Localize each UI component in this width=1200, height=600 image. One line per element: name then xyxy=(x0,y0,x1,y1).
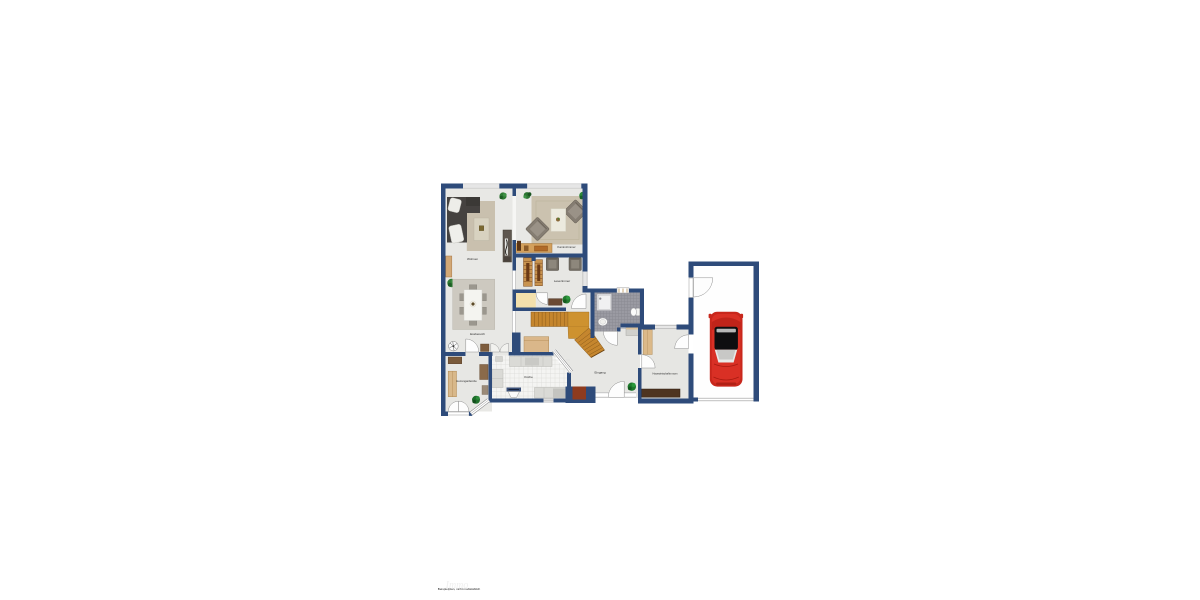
svg-text:Lesezimmer: Lesezimmer xyxy=(554,279,570,283)
svg-text:Essbereich: Essbereich xyxy=(470,332,485,336)
svg-text:Hauswirtschafts raum: Hauswirtschafts raum xyxy=(653,372,678,376)
svg-text:Wohnen: Wohnen xyxy=(467,257,478,261)
svg-text:Eingang: Eingang xyxy=(594,371,605,375)
svg-text:Küche: Küche xyxy=(524,375,533,379)
svg-text:Herrengarderobe: Herrengarderobe xyxy=(456,379,477,383)
svg-text:Kaminzimmer: Kaminzimmer xyxy=(557,245,575,249)
svg-text:Immo: Immo xyxy=(445,580,469,591)
